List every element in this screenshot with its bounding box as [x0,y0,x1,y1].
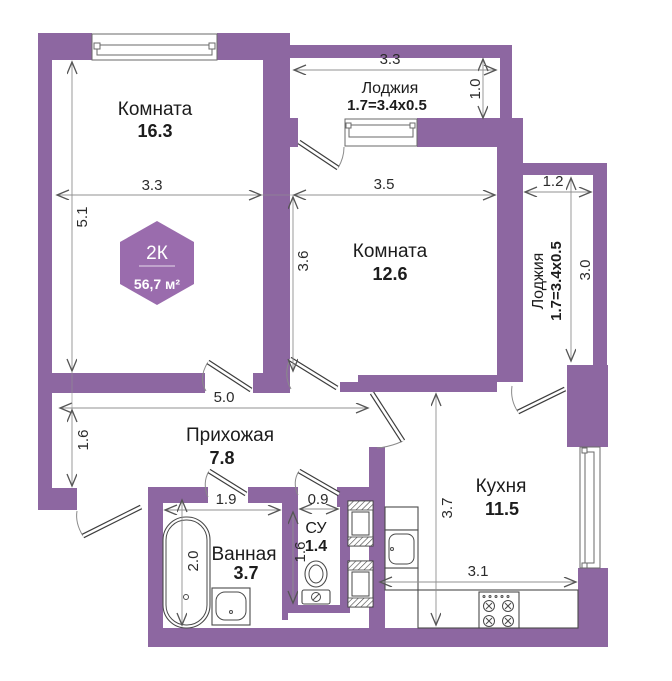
dim-room2-height: 3.6 [295,251,312,272]
dim-loggia-right-width: 1.2 [543,173,564,190]
wall-room2-bottom-nub [340,382,358,392]
room2-name-label: Комната [353,241,428,262]
wall-room2-bottom [358,375,497,392]
bathroom-sink-icon [212,588,250,625]
window-kitchen [580,447,600,568]
dim-room2-width: 3.5 [374,176,395,193]
dim-loggia-top-depth: 1.0 [467,79,484,100]
duct-notch [288,613,369,627]
loggia-top-name-label: Лоджия [362,80,419,97]
dim-wc-width: 0.9 [308,491,329,508]
vent-shaft-icon [348,501,373,546]
door-room1 [202,362,251,391]
badge-rooms-type: 2К [146,243,168,264]
wall-entry-bottom [38,488,77,510]
dim-hallway-width: 5.0 [214,389,235,406]
door-balcony [299,142,344,168]
room2-area-label: 12.6 [372,264,407,284]
vent-shaft-icon-2 [348,561,373,607]
kitchen-name-label: Кухня [476,476,527,497]
window-room1 [92,34,217,60]
wall-bath-left [148,495,163,628]
bathroom-name-label: Ванная [211,544,276,565]
dim-loggia-top-width: 3.3 [380,51,401,68]
toilet-icon [302,561,330,604]
dim-room1-height: 5.1 [74,207,91,228]
loggia-right-size-label: 1.7=3.4x0.5 [548,241,565,321]
dim-room1-width: 3.3 [142,177,163,194]
wall-left-outer [38,33,52,488]
wall-loggia-top-right [500,45,512,120]
wall-top-left [38,33,92,60]
wall-room2-right [497,118,523,382]
kitchen-sink-icon [385,530,418,568]
wall-room1-room2 [263,33,290,375]
apartment-type-badge: 2К 56,7 м² [120,221,194,305]
stove-icon [479,592,519,628]
wall-kitchen-top-right [567,365,608,447]
floor-plan: 3.3 3.5 3.3 1.2 5.0 1.9 0.9 3.1 5.1 1.6 … [0,0,672,681]
loggia-top-size-label: 1.7=3.4x0.5 [347,97,427,114]
wall-right-outer [593,163,607,365]
floor-plan-canvas: 3.3 3.5 3.3 1.2 5.0 1.9 0.9 3.1 5.1 1.6 … [0,0,672,681]
door-kitchen [372,393,403,448]
door-room2 [287,359,337,389]
room1-name-label: Комната [118,99,193,120]
wall-hall-top-mid [253,373,290,393]
loggia-right-name-label: Лоджия [530,253,547,310]
door-loggia-right [512,386,565,412]
dim-kitchen-width: 3.1 [468,563,489,580]
dim-loggia-right-height: 3.0 [577,260,594,281]
dim-kitchen-height: 3.7 [439,498,456,519]
wall-hall-top-left [38,373,205,393]
window-room2-loggia [345,119,417,146]
dim-bathroom-width: 1.9 [216,491,237,508]
bathroom-area-label: 3.7 [233,563,258,583]
dim-hallway-height: 1.6 [75,430,92,451]
kitchen-area-label: 11.5 [485,499,519,519]
hallway-name-label: Прихожая [186,425,274,446]
wall-balcony-pier [290,118,298,147]
door-entry [77,507,141,536]
wall-wc-bottom [282,605,350,613]
wc-name-label: СУ [305,520,327,537]
hallway-area-label: 7.8 [209,448,234,468]
badge-total-area: 56,7 м² [134,276,180,292]
wc-area-label: 1.4 [305,538,327,555]
bathtub-icon [163,517,210,628]
wall-bottom-outer [148,628,608,647]
room1-area-label: 16.3 [137,121,172,141]
dim-bathtub-length: 2.0 [185,551,202,572]
